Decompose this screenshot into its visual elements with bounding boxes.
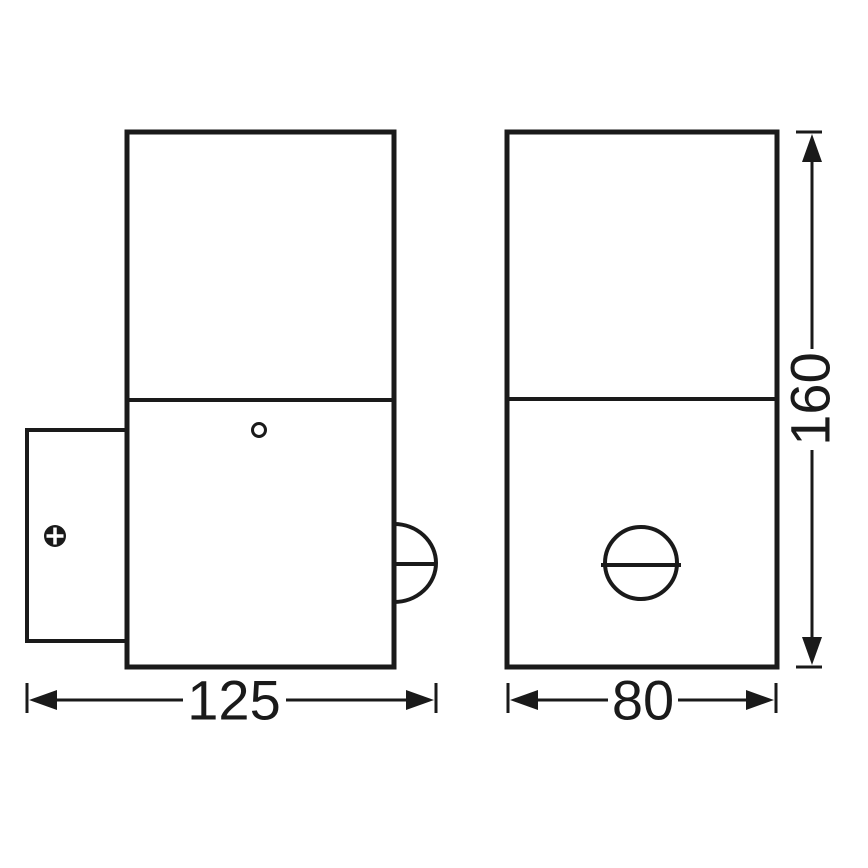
- mounting-screw-icon: [44, 525, 66, 547]
- dim-125-label: 125: [187, 669, 280, 732]
- dim-125-right-arrow-icon: [406, 690, 434, 710]
- dimension-drawing: 125 80 160: [0, 0, 868, 868]
- dim-80-right-arrow-icon: [746, 690, 774, 710]
- wall-mount-plate-outline: [27, 430, 127, 641]
- dim-160-label: 160: [779, 352, 842, 445]
- technical-drawing-page: 125 80 160: [0, 0, 868, 868]
- dim-160-down-arrow-icon: [802, 637, 822, 665]
- dimension-side-width: 125: [27, 669, 436, 732]
- motion-sensor-front-icon: [601, 527, 681, 599]
- dim-80-left-arrow-icon: [510, 690, 538, 710]
- dim-125-left-arrow-icon: [29, 690, 57, 710]
- front-view: [507, 132, 777, 667]
- side-view: [27, 132, 436, 667]
- dim-80-label: 80: [612, 669, 674, 732]
- side-view-small-hole: [253, 424, 266, 437]
- motion-sensor-side-profile: [394, 524, 436, 602]
- dim-160-up-arrow-icon: [802, 134, 822, 162]
- dimension-front-width: 80: [508, 669, 776, 732]
- dimension-height: 160: [779, 132, 842, 667]
